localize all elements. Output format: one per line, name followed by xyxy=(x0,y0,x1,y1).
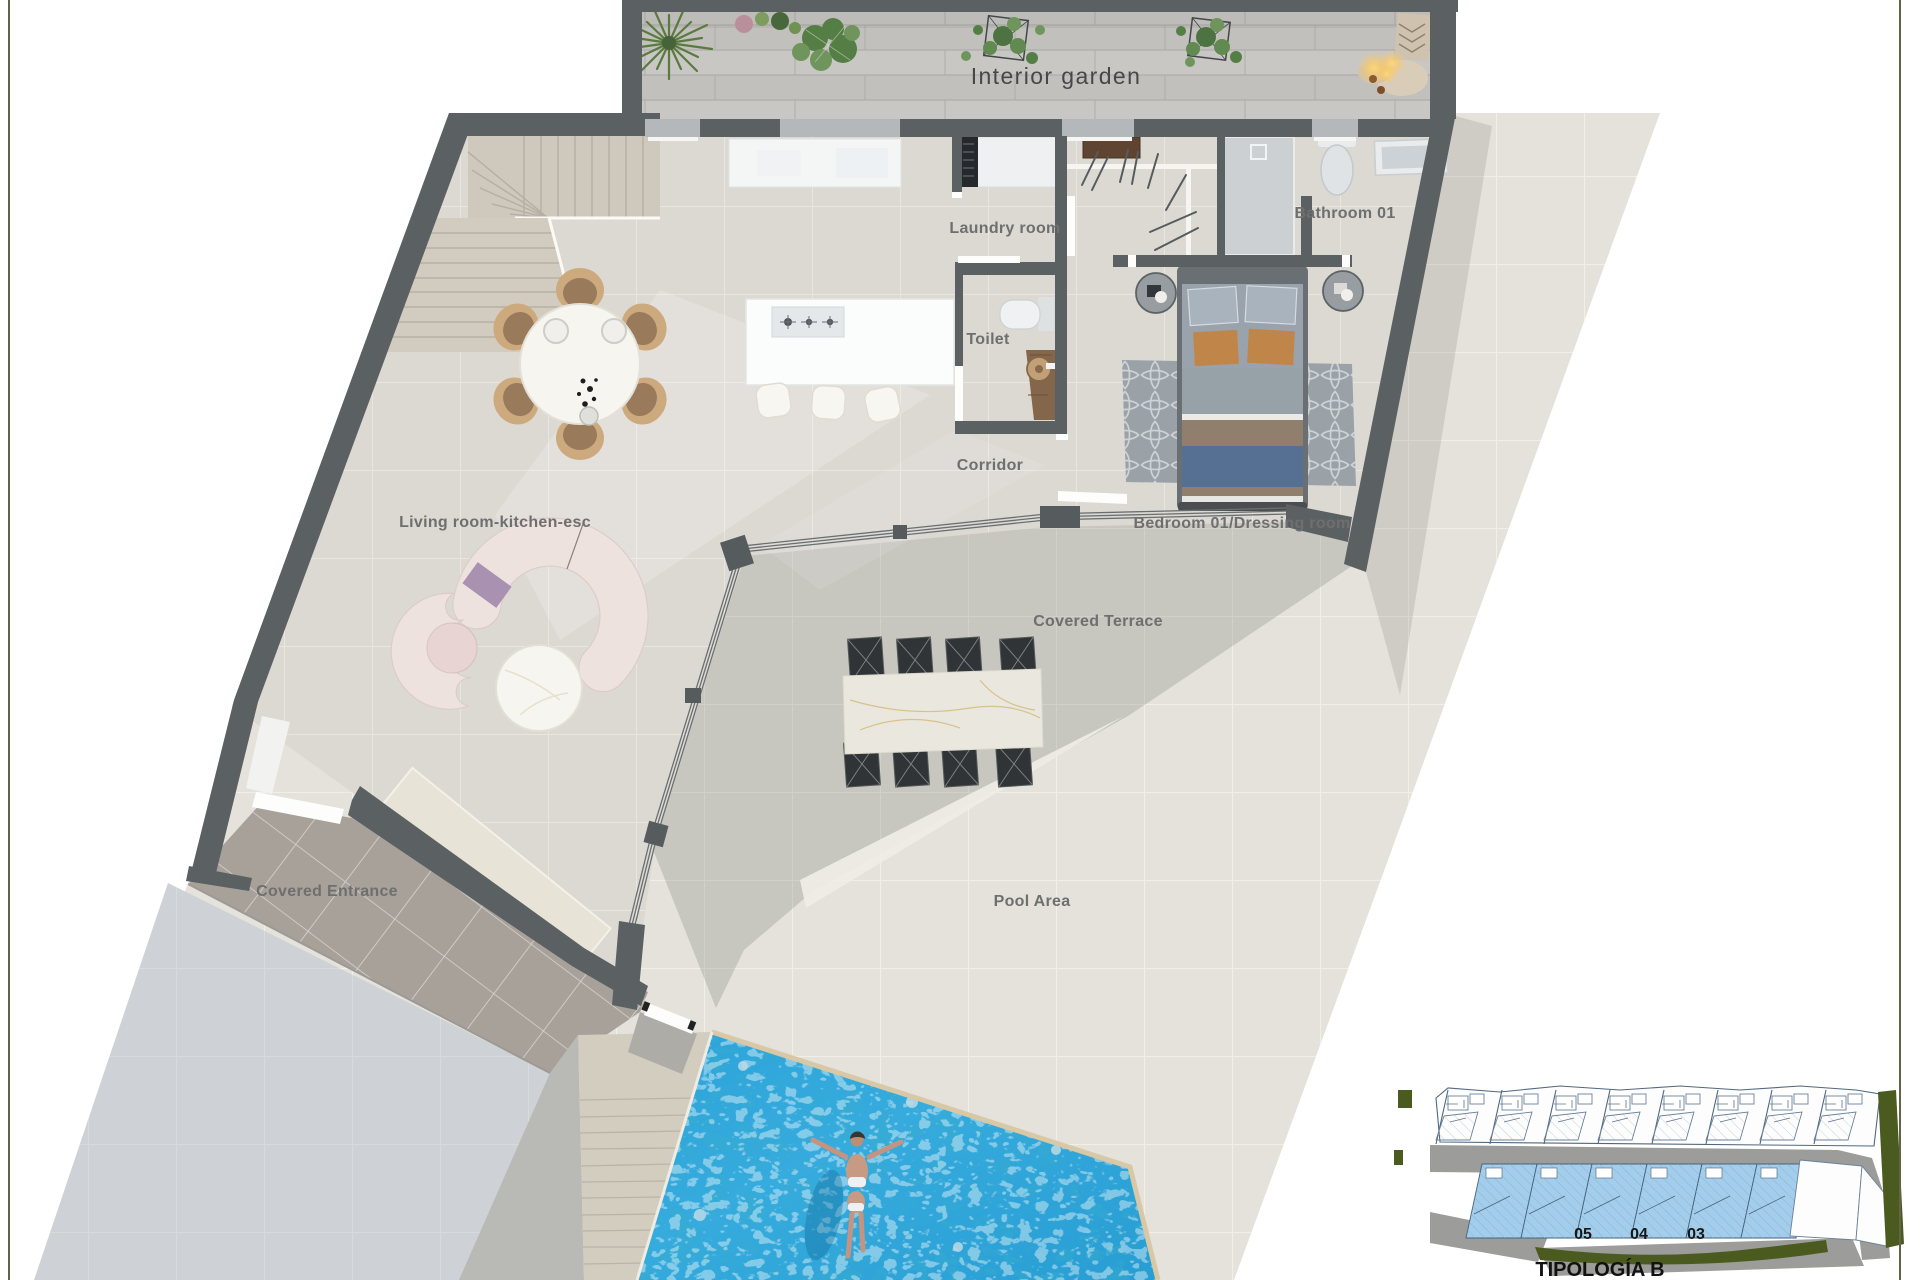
svg-text:04: 04 xyxy=(1630,1226,1648,1243)
svg-text:Covered Terrace: Covered Terrace xyxy=(1033,613,1163,630)
svg-text:Living room-kitchen-esc: Living room-kitchen-esc xyxy=(399,514,591,531)
svg-text:TIPOLOGÍA B: TIPOLOGÍA B xyxy=(1535,1258,1664,1280)
svg-text:Toilet: Toilet xyxy=(966,331,1010,348)
svg-text:Pool Area: Pool Area xyxy=(994,893,1071,910)
svg-text:05: 05 xyxy=(1574,1226,1592,1243)
svg-text:Bedroom 01/Dressing room: Bedroom 01/Dressing room xyxy=(1133,515,1350,532)
svg-text:Interior garden: Interior garden xyxy=(971,63,1142,89)
svg-text:Laundry room: Laundry room xyxy=(949,220,1060,237)
svg-text:Covered Entrance: Covered Entrance xyxy=(256,883,398,900)
svg-text:03: 03 xyxy=(1687,1226,1705,1243)
svg-text:Corridor: Corridor xyxy=(957,457,1023,474)
svg-text:Bathroom 01: Bathroom 01 xyxy=(1294,205,1395,222)
